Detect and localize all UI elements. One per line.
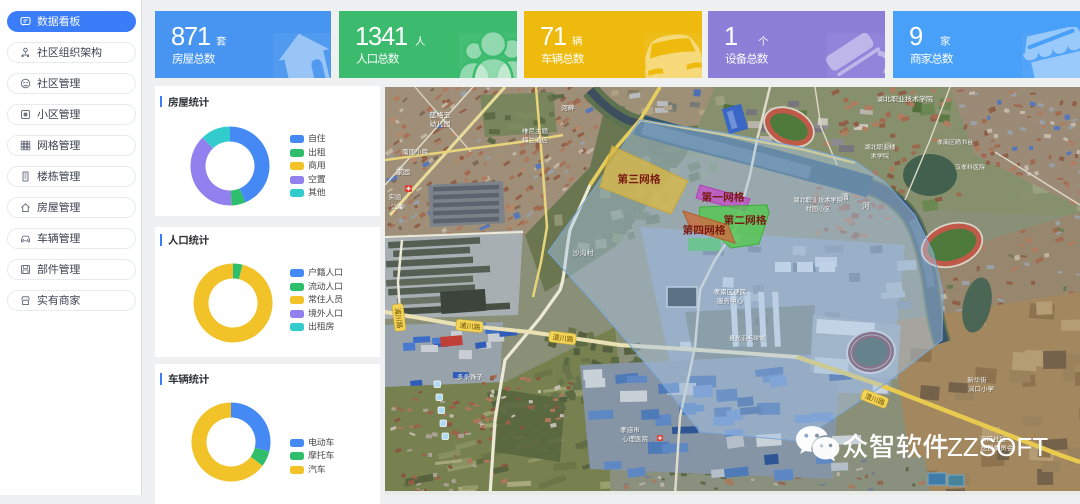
svg-text:ZZSOFT: ZZSOFT (947, 432, 1048, 462)
